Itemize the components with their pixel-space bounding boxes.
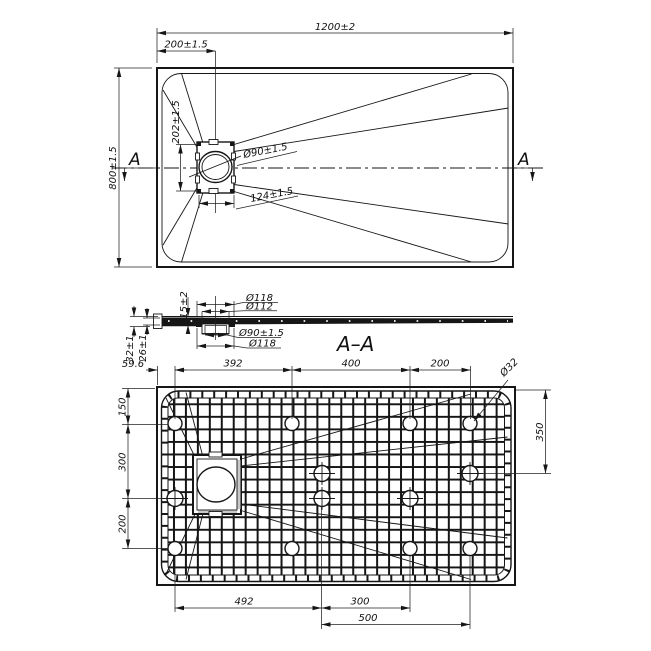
dim-drain-width: 124±1.5 — [249, 186, 294, 205]
section-view: Ø118 Ø112 Ø90±1.5 Ø118 15±2 32±1 — [125, 291, 513, 362]
dim-left-200: 200 — [118, 514, 129, 533]
dim-collar: Ø112 — [245, 301, 273, 313]
dim-drain-diameter: Ø90±1.5 — [241, 141, 288, 162]
dim-depth: 15±2 — [179, 291, 190, 318]
dim-drain-offset-x: 200±1.5 — [164, 40, 207, 51]
drain-plan — [189, 140, 241, 194]
dim-flange-bottom: Ø118 — [248, 338, 276, 350]
dim-bottom-400: 400 — [341, 359, 360, 370]
drawing-canvas: 1200±2 200±1.5 800±1.5 202±1.5 Ø90±1.5 1… — [0, 0, 651, 651]
dim-bottom-492: 492 — [234, 597, 253, 608]
section-title: A–A — [335, 332, 374, 356]
dim-overall-width: 1200±2 — [315, 22, 355, 33]
dim-bottom-596: 59.6 — [122, 359, 144, 370]
dim-bottom-392: 392 — [223, 359, 242, 370]
dim-foot-diameter: Ø32 — [497, 356, 521, 380]
dim-bottom-300: 300 — [350, 597, 369, 608]
shower-tray-technical-drawing: 1200±2 200±1.5 800±1.5 202±1.5 Ø90±1.5 1… — [0, 0, 651, 651]
dim-bottom-500: 500 — [358, 613, 377, 624]
dim-inner-height: 26±1 — [138, 334, 149, 361]
dim-left-150: 150 — [118, 397, 129, 416]
dim-bottom-200-top: 200 — [430, 359, 449, 370]
dim-right-350: 350 — [535, 422, 546, 441]
dim-drain-height: 202±1.5 — [171, 100, 182, 143]
dim-overall-height: 800±1.5 — [108, 146, 119, 189]
bottom-view: 59.6 392 400 200 Ø32 150 300 200 350 — [118, 356, 552, 629]
section-marker-a-left: A — [128, 150, 141, 170]
section-marker-a-right: A — [517, 150, 530, 170]
drain-bottom — [193, 452, 241, 517]
top-view: 1200±2 200±1.5 800±1.5 202±1.5 Ø90±1.5 1… — [108, 22, 546, 267]
dim-drain-hole: Ø90±1.5 — [238, 327, 284, 339]
dim-left-300: 300 — [118, 452, 129, 471]
